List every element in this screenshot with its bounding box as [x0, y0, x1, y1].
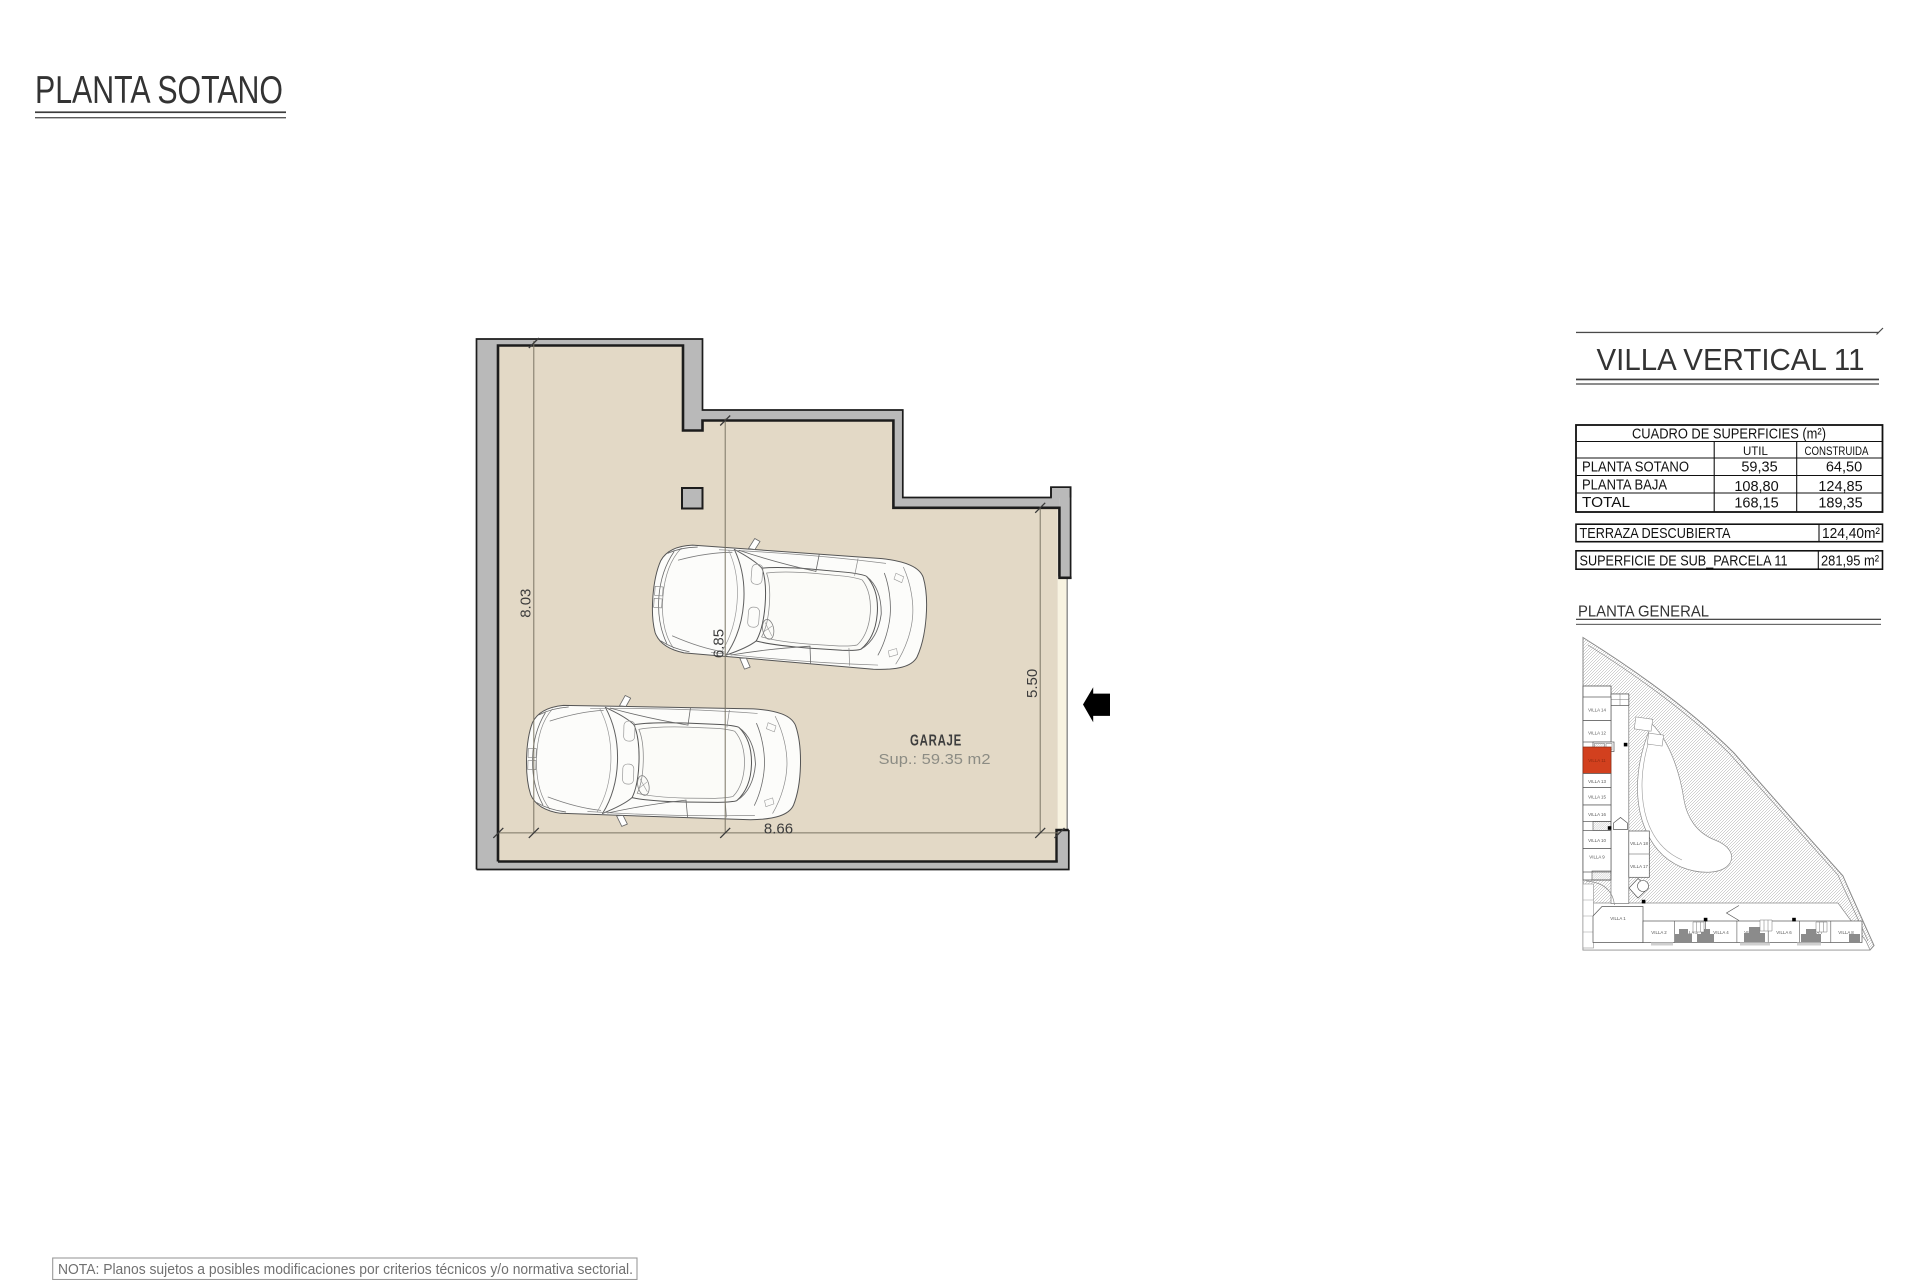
svg-text:VILLA 13: VILLA 13 [1588, 779, 1606, 784]
svg-text:VILLA 10: VILLA 10 [1588, 838, 1606, 843]
svg-text:VILLA VERTICAL 11: VILLA VERTICAL 11 [1597, 342, 1865, 377]
svg-text:TOTAL: TOTAL [1582, 495, 1630, 511]
svg-text:8.03: 8.03 [518, 589, 535, 618]
svg-text:VILLA 16: VILLA 16 [1588, 812, 1606, 817]
svg-text:281,95 m²: 281,95 m² [1821, 553, 1879, 570]
svg-text:VILLA 15: VILLA 15 [1588, 795, 1606, 800]
svg-text:VILLA 6: VILLA 6 [1776, 930, 1792, 935]
svg-text:5.50: 5.50 [1024, 669, 1041, 698]
svg-text:CUADRO DE SUPERFICIES (m²): CUADRO DE SUPERFICIES (m²) [1632, 426, 1826, 443]
svg-text:PLANTA SOTANO: PLANTA SOTANO [1582, 460, 1689, 476]
svg-text:Sup.: 59.35 m2: Sup.: 59.35 m2 [879, 752, 991, 768]
svg-text:6.85: 6.85 [711, 629, 728, 658]
svg-text:GARAJE: GARAJE [910, 733, 962, 750]
svg-text:UTIL: UTIL [1743, 446, 1769, 458]
svg-text:168,15: 168,15 [1734, 496, 1778, 512]
svg-text:59,35: 59,35 [1741, 460, 1777, 476]
svg-text:VILLA 17: VILLA 17 [1630, 864, 1648, 869]
svg-text:CONSTRUIDA: CONSTRUIDA [1805, 446, 1869, 458]
svg-text:VILLA 2: VILLA 2 [1651, 930, 1667, 935]
svg-text:VILLA 9: VILLA 9 [1589, 855, 1605, 860]
svg-text:VILLA 12: VILLA 12 [1588, 731, 1606, 736]
svg-text:VILLA 1: VILLA 1 [1610, 916, 1626, 921]
svg-text:8.66: 8.66 [764, 821, 793, 838]
svg-text:VILLA 14: VILLA 14 [1588, 708, 1606, 713]
svg-text:108,80: 108,80 [1734, 479, 1778, 495]
svg-text:PLANTA GENERAL: PLANTA GENERAL [1578, 604, 1709, 621]
svg-text:PLANTA SOTANO: PLANTA SOTANO [35, 69, 283, 112]
svg-text:TERRAZA DESCUBIERTA: TERRAZA DESCUBIERTA [1580, 525, 1731, 542]
svg-text:VILLA 18: VILLA 18 [1630, 841, 1648, 846]
svg-text:VILLA 4: VILLA 4 [1713, 930, 1729, 935]
svg-text:189,35: 189,35 [1818, 496, 1862, 512]
svg-text:PLANTA BAJA: PLANTA BAJA [1582, 478, 1667, 494]
svg-text:124,40m²: 124,40m² [1822, 525, 1880, 542]
svg-text:VILLA 11: VILLA 11 [1588, 758, 1606, 763]
svg-text:124,85: 124,85 [1818, 479, 1862, 495]
svg-text:SUPERFICIE DE SUB_PARCELA 11: SUPERFICIE DE SUB_PARCELA 11 [1580, 553, 1788, 570]
svg-text:64,50: 64,50 [1826, 460, 1862, 476]
svg-text:NOTA: Planos sujetos a posible: NOTA: Planos sujetos a posibles modifica… [58, 1261, 633, 1278]
